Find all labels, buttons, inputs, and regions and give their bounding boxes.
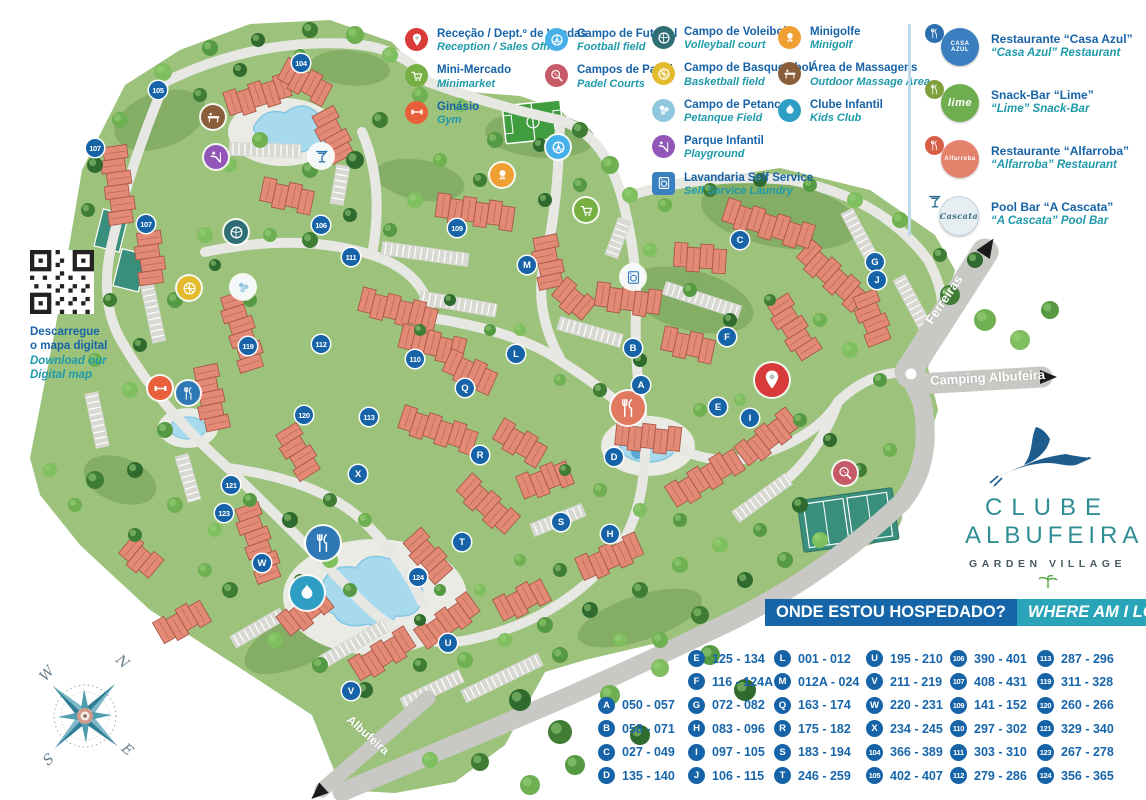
legend-label-pt: Ginásio bbox=[437, 101, 479, 114]
index-row-D: D135 - 140 bbox=[598, 767, 675, 784]
index-badge: C bbox=[598, 744, 615, 761]
legend-label-pt: Lavandaria Self Service bbox=[684, 172, 813, 185]
map-marker-T: T bbox=[453, 533, 471, 551]
qr-caption-en-1: Download our bbox=[30, 354, 107, 368]
index-row-119: 119311 - 328 bbox=[1037, 673, 1113, 690]
index-badge: J bbox=[688, 767, 705, 784]
index-badge: G bbox=[688, 697, 705, 714]
index-row-C: C027 - 049 bbox=[598, 744, 675, 761]
index-row-113: 113287 - 296 bbox=[1037, 650, 1114, 667]
basketball-icon bbox=[177, 276, 201, 300]
kids-club-icon bbox=[290, 576, 324, 610]
legend-label-pt: Clube Infantil bbox=[810, 99, 883, 112]
index-row-I: I097 - 105 bbox=[688, 744, 765, 761]
forkknife-icon bbox=[925, 24, 944, 43]
map-marker-H: H bbox=[601, 525, 619, 543]
map-marker-124: 124 bbox=[409, 568, 427, 586]
map-marker-111: 111 bbox=[342, 248, 360, 266]
restaurant-item: CASA AZULRestaurante “Casa Azul”“Casa Az… bbox=[925, 24, 1146, 68]
cocktail-icon bbox=[925, 192, 944, 211]
restaurant-logo: Alfarroba bbox=[925, 136, 981, 180]
legend-label-pt: Campo de Voleibol bbox=[684, 26, 787, 39]
restaurant-logo: CASA AZUL bbox=[925, 24, 981, 68]
index-row-121: 121329 - 340 bbox=[1037, 720, 1114, 737]
qr-caption-pt-2: o mapa digital bbox=[30, 339, 107, 353]
index-range: 072 - 082 bbox=[712, 698, 765, 712]
brand-logo: CLUBE ALBUFEIRA GARDEN VILLAGE bbox=[965, 425, 1130, 594]
index-badge: I bbox=[688, 744, 705, 761]
map-marker-L: L bbox=[507, 345, 525, 363]
map-marker-S: S bbox=[552, 513, 570, 531]
restaurant-name-en: “A Cascata” Pool Bar bbox=[991, 214, 1113, 228]
map-marker-107: 107 bbox=[86, 139, 104, 157]
index-row-W: W220 - 231 bbox=[866, 697, 943, 714]
volleyball-icon bbox=[224, 220, 248, 244]
map-marker-D: D bbox=[605, 448, 623, 466]
index-range: 390 - 401 bbox=[974, 652, 1027, 666]
brand-line-3: GARDEN VILLAGE bbox=[965, 558, 1130, 570]
index-badge: 120 bbox=[1037, 697, 1054, 714]
banner-en: WHERE AM I LOCATED? bbox=[1017, 599, 1146, 626]
minimarket-icon bbox=[574, 198, 598, 222]
index-row-107: 107408 - 431 bbox=[950, 673, 1027, 690]
brand-line-2: ALBUFEIRA bbox=[965, 522, 1130, 550]
index-row-X: X234 - 245 bbox=[866, 720, 943, 737]
index-range: 267 - 278 bbox=[1061, 745, 1114, 759]
index-badge: 119 bbox=[1037, 673, 1054, 690]
forkknife-icon bbox=[925, 80, 944, 99]
map-marker-104: 104 bbox=[292, 54, 310, 72]
map-marker-E: E bbox=[709, 398, 727, 416]
index-row-109: 109141 - 152 bbox=[950, 697, 1027, 714]
index-range: 001 - 012 bbox=[798, 652, 851, 666]
index-badge: S bbox=[774, 744, 791, 761]
legend-label-en: Self Service Laundry bbox=[684, 185, 813, 198]
index-badge: 107 bbox=[950, 673, 967, 690]
restaurant-alfarroba-icon bbox=[611, 391, 645, 425]
index-badge: 105 bbox=[866, 767, 883, 784]
restaurant-name-en: “Alfarroba” Restaurant bbox=[991, 158, 1129, 172]
petanque-icon bbox=[652, 99, 675, 122]
index-row-R: R175 - 182 bbox=[774, 720, 851, 737]
index-row-110: 110297 - 302 bbox=[950, 720, 1027, 737]
index-range: 083 - 096 bbox=[712, 722, 765, 736]
index-badge: 110 bbox=[950, 720, 967, 737]
restaurant-name-en: “Lime” Snack-Bar bbox=[991, 102, 1094, 116]
restaurant-logo: lime bbox=[925, 80, 981, 124]
index-badge: M bbox=[774, 673, 791, 690]
restaurant-name-pt: Pool Bar “A Cascata” bbox=[991, 200, 1113, 214]
splash-icon bbox=[778, 99, 801, 122]
index-range: 106 - 115 bbox=[712, 769, 764, 783]
map-marker-110: 110 bbox=[406, 350, 424, 368]
restaurant-name-pt: Restaurante “Alfarroba” bbox=[991, 144, 1129, 158]
palm-icon bbox=[1036, 574, 1060, 589]
qr-caption-en-2: Digital map bbox=[30, 368, 107, 382]
index-range: 329 - 340 bbox=[1061, 722, 1114, 736]
washer-icon bbox=[652, 172, 675, 195]
index-row-J: J106 - 115 bbox=[688, 767, 764, 784]
index-range: 058 - 071 bbox=[622, 722, 675, 736]
compass-rose: N W S E bbox=[30, 652, 140, 781]
reception-pin-icon bbox=[755, 363, 789, 397]
restaurant-item: limeSnack-Bar “Lime”“Lime” Snack-Bar bbox=[925, 80, 1146, 124]
index-range: 220 - 231 bbox=[890, 698, 943, 712]
where-am-i-banner: ONDE ESTOU HOSPEDADO? WHERE AM I LOCATED… bbox=[765, 599, 1146, 626]
index-range: 408 - 431 bbox=[974, 675, 1027, 689]
legend-label-en: Petanque Field bbox=[684, 112, 787, 125]
index-range: 097 - 105 bbox=[712, 745, 765, 759]
index-row-A: A050 - 057 bbox=[598, 697, 675, 714]
index-badge: T bbox=[774, 767, 791, 784]
index-badge: A bbox=[598, 697, 615, 714]
index-range: 356 - 365 bbox=[1061, 769, 1114, 783]
index-badge: 106 bbox=[950, 650, 967, 667]
restaurant-icon bbox=[176, 381, 200, 405]
index-row-104: 104366 - 389 bbox=[866, 744, 943, 761]
banner-pt: ONDE ESTOU HOSPEDADO? bbox=[765, 599, 1017, 626]
padel-courts-icon bbox=[833, 461, 857, 485]
map-marker-119: 119 bbox=[239, 337, 257, 355]
legend-label-pt: Parque Infantil bbox=[684, 135, 764, 148]
index-row-T: T246 - 259 bbox=[774, 767, 851, 784]
index-badge: 121 bbox=[1037, 720, 1054, 737]
index-badge: B bbox=[598, 720, 615, 737]
map-marker-B: B bbox=[624, 339, 642, 357]
legend-label-en: Minimarket bbox=[437, 78, 511, 91]
legend-label-pt: Minigolfe bbox=[810, 26, 860, 39]
index-badge: D bbox=[598, 767, 615, 784]
pin-icon bbox=[405, 28, 428, 51]
index-row-124: 124356 - 365 bbox=[1037, 767, 1114, 784]
index-badge: V bbox=[866, 673, 883, 690]
map-marker-112: 112 bbox=[312, 335, 330, 353]
map-marker-Q: Q bbox=[456, 379, 474, 397]
restaurants-panel: CASA AZULRestaurante “Casa Azul”“Casa Az… bbox=[908, 24, 1146, 236]
map-marker-113: 113 bbox=[360, 408, 378, 426]
map-marker-123: 123 bbox=[215, 504, 233, 522]
index-row-M: M012A - 024 bbox=[774, 673, 859, 690]
index-row-105: 105402 - 407 bbox=[866, 767, 943, 784]
index-row-E: E125 - 134 bbox=[688, 650, 765, 667]
cart-icon bbox=[405, 64, 428, 87]
index-range: 211 - 219 bbox=[890, 675, 942, 689]
index-range: 027 - 049 bbox=[622, 745, 675, 759]
map-marker-U: U bbox=[439, 634, 457, 652]
index-badge: 124 bbox=[1037, 767, 1054, 784]
restaurant-name-pt: Restaurante “Casa Azul” bbox=[991, 32, 1133, 46]
legend-item: Parque InfantilPlayground bbox=[652, 135, 813, 161]
legend-label-en: Playground bbox=[684, 148, 764, 161]
football-icon bbox=[545, 28, 568, 51]
football-field-icon bbox=[546, 135, 570, 159]
index-badge: 104 bbox=[866, 744, 883, 761]
slide-icon bbox=[652, 135, 675, 158]
index-range: 366 - 389 bbox=[890, 745, 943, 759]
massage-icon bbox=[778, 62, 801, 85]
basketball-icon bbox=[652, 62, 675, 85]
restaurant-item: CascataPool Bar “A Cascata”“A Cascata” P… bbox=[925, 192, 1146, 236]
index-range: 195 - 210 bbox=[890, 652, 943, 666]
index-range: 163 - 174 bbox=[798, 698, 851, 712]
map-marker-M: M bbox=[518, 256, 536, 274]
resort-map-page: Receção / Dept.º de VendasReception / Sa… bbox=[0, 0, 1146, 800]
map-marker-120: 120 bbox=[295, 406, 313, 424]
index-badge: E bbox=[688, 650, 705, 667]
index-range: 125 - 134 bbox=[712, 652, 765, 666]
index-range: 175 - 182 bbox=[798, 722, 851, 736]
index-range: 050 - 057 bbox=[622, 698, 675, 712]
index-row-V: V211 - 219 bbox=[866, 673, 942, 690]
legend-label-en: Gym bbox=[437, 114, 479, 127]
index-range: 141 - 152 bbox=[974, 698, 1027, 712]
index-range: 279 - 286 bbox=[974, 769, 1027, 783]
stork-icon bbox=[988, 425, 1108, 487]
index-row-111: 111303 - 310 bbox=[950, 744, 1027, 761]
restaurant-name-pt: Snack-Bar “Lime” bbox=[991, 88, 1094, 102]
index-range: 303 - 310 bbox=[974, 745, 1027, 759]
index-row-F: F116 - 124A bbox=[688, 673, 773, 690]
snack-bar-icon bbox=[306, 526, 340, 560]
index-row-112: 112279 - 286 bbox=[950, 767, 1027, 784]
index-row-H: H083 - 096 bbox=[688, 720, 765, 737]
legend-label-pt: Mini-Mercado bbox=[437, 64, 511, 77]
map-marker-C: C bbox=[731, 231, 749, 249]
brand-line-1: CLUBE bbox=[965, 494, 1130, 522]
index-range: 402 - 407 bbox=[890, 769, 943, 783]
playground-icon bbox=[204, 145, 228, 169]
minigolf-icon bbox=[490, 163, 514, 187]
index-range: 135 - 140 bbox=[622, 769, 675, 783]
index-badge: 109 bbox=[950, 697, 967, 714]
index-badge: 113 bbox=[1037, 650, 1054, 667]
index-badge: W bbox=[866, 697, 883, 714]
index-row-123: 123267 - 278 bbox=[1037, 744, 1114, 761]
index-range: 183 - 194 bbox=[798, 745, 851, 759]
map-marker-109: 109 bbox=[448, 219, 466, 237]
index-range: 260 - 266 bbox=[1061, 698, 1114, 712]
map-marker-V: V bbox=[342, 682, 360, 700]
index-range: 287 - 296 bbox=[1061, 652, 1114, 666]
map-marker-W: W bbox=[253, 554, 271, 572]
index-row-120: 120260 - 266 bbox=[1037, 697, 1114, 714]
massage-area-icon bbox=[201, 105, 225, 129]
restaurant-logo: Cascata bbox=[925, 192, 981, 236]
index-badge: U bbox=[866, 650, 883, 667]
legend-label-en: Kids Club bbox=[810, 112, 883, 125]
index-range: 234 - 245 bbox=[890, 722, 943, 736]
map-marker-J: J bbox=[868, 271, 886, 289]
index-range: 012A - 024 bbox=[798, 675, 859, 689]
index-range: 311 - 328 bbox=[1061, 675, 1113, 689]
map-marker-I: I bbox=[741, 409, 759, 427]
index-row-106: 106390 - 401 bbox=[950, 650, 1027, 667]
qr-code bbox=[30, 250, 94, 314]
index-badge: X bbox=[866, 720, 883, 737]
petanque-icon bbox=[231, 275, 255, 299]
map-marker-X: X bbox=[349, 465, 367, 483]
map-marker-R: R bbox=[471, 446, 489, 464]
map-marker-A: A bbox=[632, 376, 650, 394]
map-marker-121: 121 bbox=[222, 476, 240, 494]
map-marker-106: 106 bbox=[312, 216, 330, 234]
map-marker-F: F bbox=[718, 328, 736, 346]
map-marker-105: 105 bbox=[149, 81, 167, 99]
index-row-B: B058 - 071 bbox=[598, 720, 675, 737]
index-row-U: U195 - 210 bbox=[866, 650, 943, 667]
pool-bar-icon bbox=[309, 144, 333, 168]
index-badge: L bbox=[774, 650, 791, 667]
laundry-icon bbox=[621, 265, 645, 289]
index-range: 116 - 124A bbox=[712, 675, 773, 689]
map-marker-107: 107 bbox=[137, 215, 155, 233]
index-badge: F bbox=[688, 673, 705, 690]
legend-label-en: Minigolf bbox=[810, 39, 860, 52]
legend-label-en: Volleyball court bbox=[684, 39, 787, 52]
index-badge: 112 bbox=[950, 767, 967, 784]
restaurant-name-en: “Casa Azul” Restaurant bbox=[991, 46, 1133, 60]
index-range: 246 - 259 bbox=[798, 769, 851, 783]
restaurant-item: AlfarrobaRestaurante “Alfarroba”“Alfarro… bbox=[925, 136, 1146, 180]
index-badge: 123 bbox=[1037, 744, 1054, 761]
index-badge: H bbox=[688, 720, 705, 737]
index-range: 297 - 302 bbox=[974, 722, 1027, 736]
index-row-Q: Q163 - 174 bbox=[774, 697, 851, 714]
forkknife-icon bbox=[925, 136, 944, 155]
index-badge: Q bbox=[774, 697, 791, 714]
golf-icon bbox=[778, 26, 801, 49]
gym-icon bbox=[148, 376, 172, 400]
volleyball-icon bbox=[652, 26, 675, 49]
padel-icon bbox=[545, 64, 568, 87]
index-badge: 111 bbox=[950, 744, 967, 761]
dumbbell-icon bbox=[405, 101, 428, 124]
legend-item: Lavandaria Self ServiceSelf Service Laun… bbox=[652, 172, 813, 198]
index-row-S: S183 - 194 bbox=[774, 744, 851, 761]
index-row-L: L001 - 012 bbox=[774, 650, 851, 667]
index-row-G: G072 - 082 bbox=[688, 697, 765, 714]
index-badge: R bbox=[774, 720, 791, 737]
qr-caption-pt-1: Descarregue bbox=[30, 325, 107, 339]
map-marker-G: G bbox=[866, 253, 884, 271]
legend-item: GinásioGym bbox=[405, 101, 587, 127]
legend-label-pt: Campo de Petanca bbox=[684, 99, 787, 112]
qr-block: Descarregue o mapa digital Download our … bbox=[30, 250, 107, 383]
